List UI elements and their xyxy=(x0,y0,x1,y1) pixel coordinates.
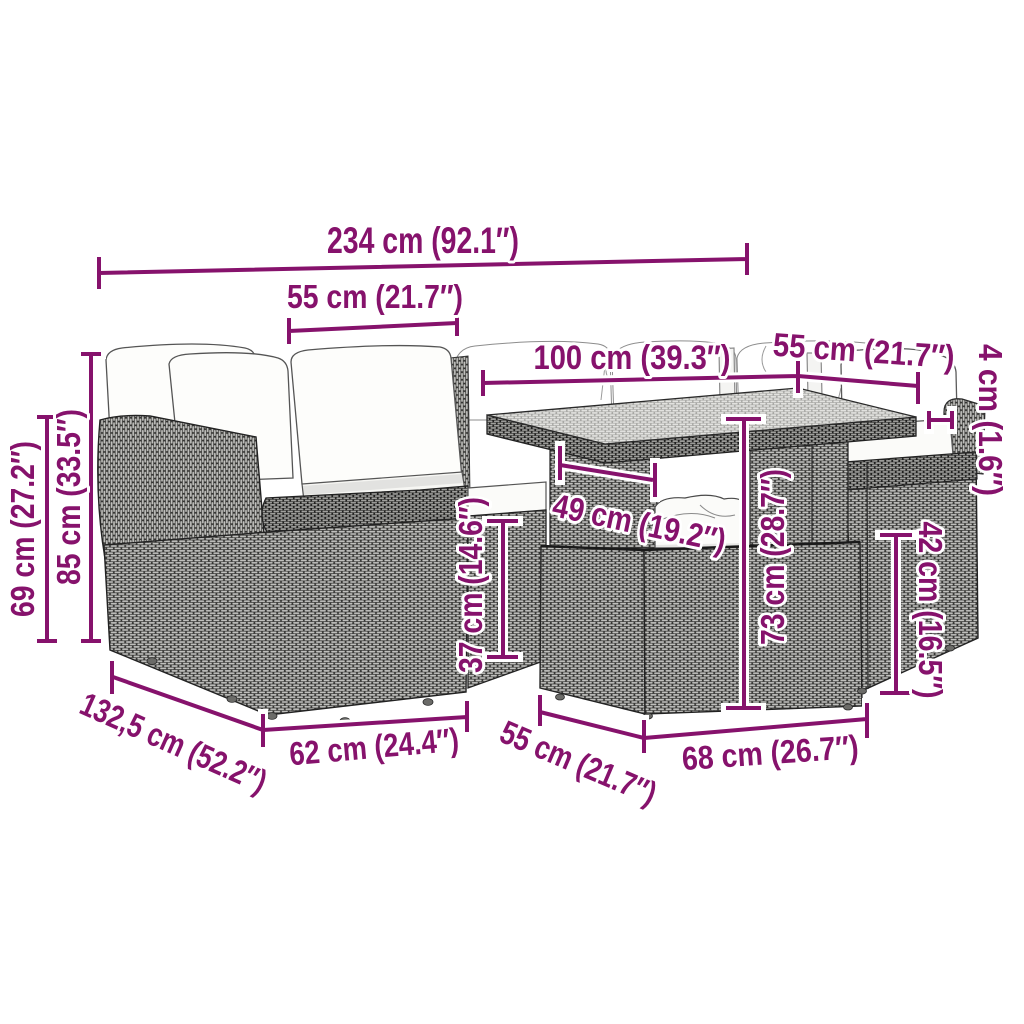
svg-text:55 cm (21.7″): 55 cm (21.7″) xyxy=(287,278,463,315)
svg-text:42 cm (16.5″): 42 cm (16.5″) xyxy=(912,522,949,699)
svg-text:73 cm (28.7″): 73 cm (28.7″) xyxy=(754,469,791,645)
svg-text:100 cm (39.3″): 100 cm (39.3″) xyxy=(534,339,731,377)
svg-text:85 cm (33.5″): 85 cm (33.5″) xyxy=(50,409,87,585)
svg-text:4 cm (1.6″): 4 cm (1.6″) xyxy=(972,344,1009,496)
svg-text:37 cm (14.6″): 37 cm (14.6″) xyxy=(452,497,489,673)
svg-text:234 cm (92.1″): 234 cm (92.1″) xyxy=(327,220,519,261)
svg-text:69 cm (27.2″): 69 cm (27.2″) xyxy=(4,441,41,617)
